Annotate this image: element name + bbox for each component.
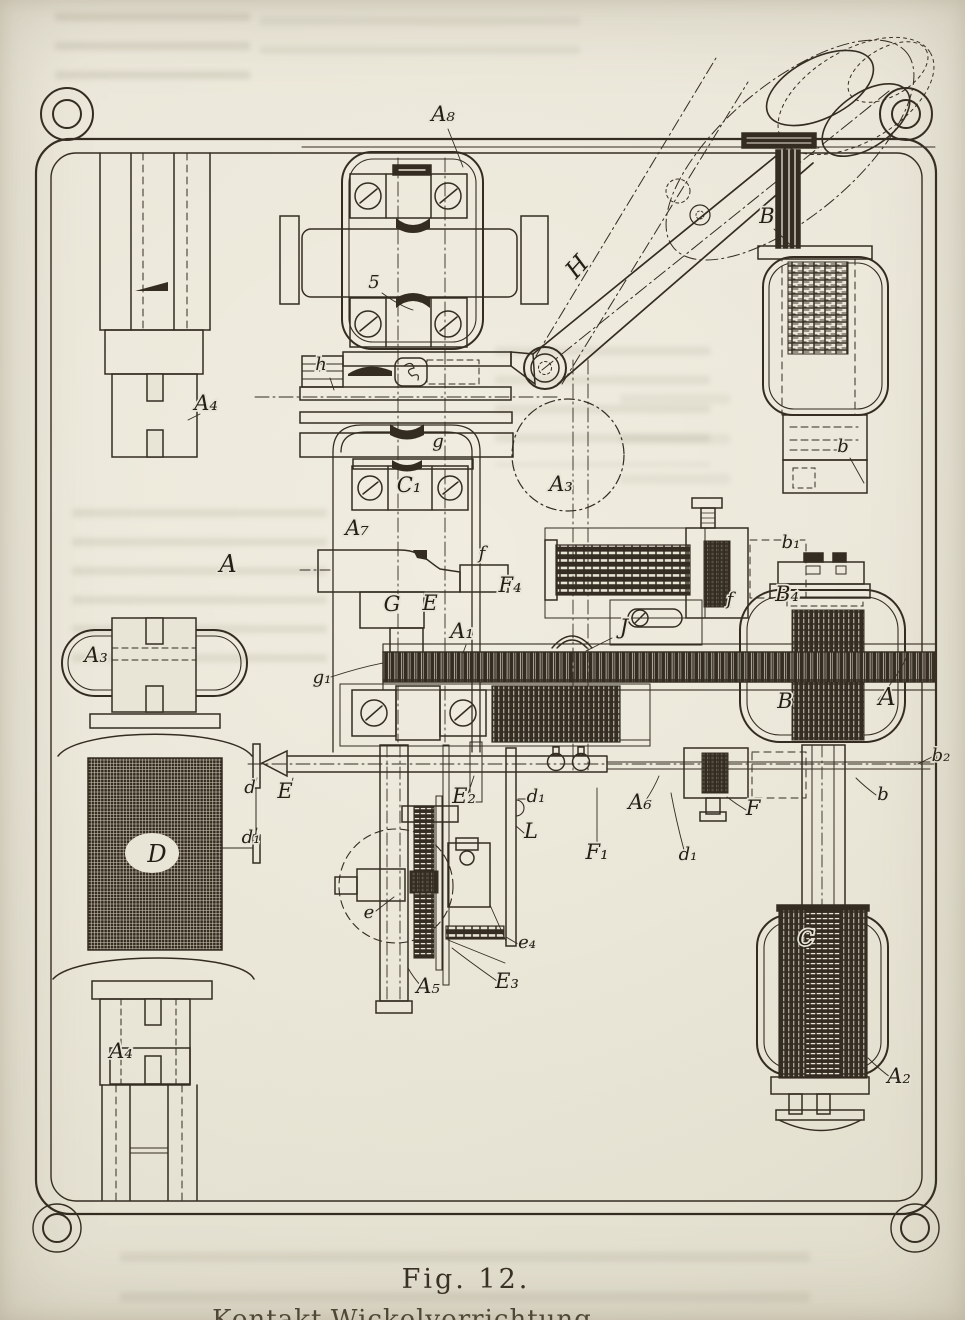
coil-D xyxy=(53,758,254,999)
scanned-book-page: A₈ 5 h g A₄ A A₃ H B b A₃ C₁ A₇ f F₄ G E… xyxy=(0,0,965,1320)
part-label-A2: A₂ xyxy=(885,1064,911,1088)
part-label-f-right: f xyxy=(725,589,737,610)
coil-C-assembly xyxy=(757,745,888,1131)
part-label-d: d xyxy=(244,777,256,798)
part-label-E-rod: E xyxy=(276,779,292,803)
terminal-block-bottom xyxy=(350,298,467,347)
part-label-F1: F₁ xyxy=(585,840,609,864)
pedestal-A4-lower xyxy=(100,999,197,1200)
lead-screw-assembly xyxy=(545,498,806,648)
part-label-C-coil: C xyxy=(798,926,814,950)
part-label-A7: A₇ xyxy=(343,516,369,540)
spool-B xyxy=(758,150,888,493)
part-label-b1: b₁ xyxy=(782,532,801,553)
part-label-A4-top: A₄ xyxy=(192,391,218,415)
part-label-h: h xyxy=(315,354,327,375)
part-label-A-right: A xyxy=(876,683,895,711)
part-label-g: g xyxy=(432,431,444,452)
corner-lug-top-left xyxy=(41,88,93,140)
roller xyxy=(280,216,548,304)
part-label-A3-left: A₃ xyxy=(82,643,108,667)
part-label-b2: b₂ xyxy=(932,745,951,766)
part-label-A6: A₆ xyxy=(626,790,652,814)
part-label-b-spool: b xyxy=(837,436,849,457)
part-label-B4: B₄ xyxy=(774,582,799,606)
lever-swing-ghost xyxy=(536,2,953,384)
pivot-plate-stack xyxy=(300,352,513,472)
part-label-G: G xyxy=(384,592,401,616)
part-label-H-lever: H xyxy=(559,249,595,285)
part-label-e4: e₄ xyxy=(518,932,536,953)
lower-terminal-block xyxy=(340,684,650,746)
part-label-F4: F₄ xyxy=(498,573,522,597)
part-label-A3-circle: A₃ xyxy=(547,472,573,496)
lever-head xyxy=(742,35,922,171)
part-label-F: F xyxy=(745,796,762,820)
part-label-A1: A₁ xyxy=(448,619,474,643)
part-label-g1: g₁ xyxy=(313,667,332,688)
part-label-E2: E₂ xyxy=(451,784,476,808)
part-label-E3: E₃ xyxy=(494,969,519,993)
patent-figure: A₈ 5 h g A₄ A A₃ H B b A₃ C₁ A₇ f F₄ G E… xyxy=(0,0,965,1320)
part-label-L: L xyxy=(523,819,538,843)
part-label-D-coil: D xyxy=(146,840,166,868)
part-label-f-left: f xyxy=(477,543,489,564)
part-label-5: 5 xyxy=(368,272,379,293)
part-label-A-left: A xyxy=(217,550,236,578)
part-label-A8: A₈ xyxy=(429,102,455,126)
figure-caption-title: Kontakt-Wickelvorrichtung xyxy=(212,1305,592,1320)
part-label-J: J xyxy=(616,615,630,639)
terminal-block-top xyxy=(350,174,467,218)
part-label-e: e xyxy=(364,902,375,923)
part-label-d1-mid: d₁ xyxy=(527,786,546,807)
part-label-A4-bottom: A₄ xyxy=(107,1039,133,1063)
part-label-E-mid: E xyxy=(421,591,437,615)
figure-caption-number: Fig. 12. xyxy=(402,1264,531,1295)
left-yoke-A3 xyxy=(58,618,252,756)
part-label-C1: C₁ xyxy=(397,473,422,497)
top-terminal-yoke-A8 xyxy=(280,152,548,349)
bracket-A4-upper xyxy=(112,374,197,457)
part-label-d1-axle: d₁ xyxy=(679,844,698,865)
part-label-A5: A₅ xyxy=(414,974,440,998)
part-label-d1-left: d₁ xyxy=(242,827,261,848)
part-label-b-lower: b xyxy=(877,784,889,805)
part-label-B-spool: B xyxy=(758,204,774,228)
part-label-B-yoke: B xyxy=(776,689,792,713)
bracket-A7 xyxy=(300,550,508,654)
